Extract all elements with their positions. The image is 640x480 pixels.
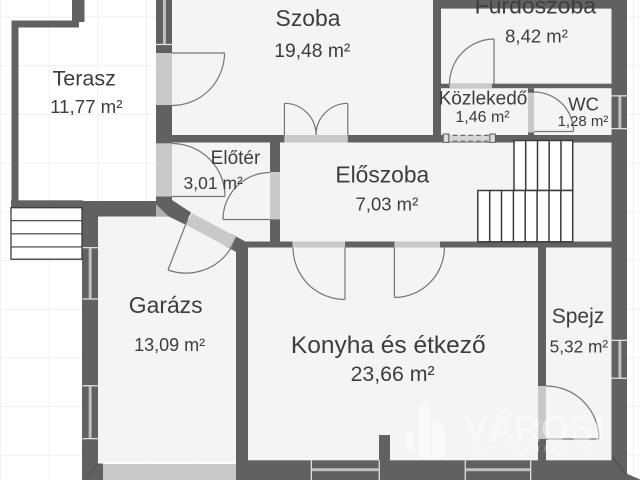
svg-text:3,01 m²: 3,01 m² — [184, 173, 243, 193]
svg-text:19,48 m²: 19,48 m² — [274, 41, 351, 62]
svg-text:Előtér: Előtér — [211, 148, 261, 169]
svg-text:INGATLANIRODA: INGATLANIRODA — [464, 444, 594, 454]
svg-text:7,03 m²: 7,03 m² — [356, 194, 419, 215]
svg-text:Fürdőszoba: Fürdőszoba — [475, 0, 597, 19]
svg-text:Terasz: Terasz — [53, 67, 116, 91]
svg-text:Szoba: Szoba — [276, 5, 341, 31]
svg-text:Konyha és étkező: Konyha és étkező — [291, 332, 486, 359]
svg-text:Előszoba: Előszoba — [335, 161, 429, 187]
svg-text:Spejz: Spejz — [552, 305, 605, 328]
svg-text:Garázs: Garázs — [129, 292, 203, 318]
svg-text:5,32 m²: 5,32 m² — [550, 337, 609, 357]
svg-text:1,46 m²: 1,46 m² — [455, 109, 510, 126]
svg-text:8,42 m²: 8,42 m² — [505, 26, 568, 47]
svg-text:23,66 m²: 23,66 m² — [351, 362, 435, 386]
svg-text:WC: WC — [568, 94, 599, 115]
svg-text:11,77 m²: 11,77 m² — [50, 96, 122, 117]
svg-text:Közlekedő: Közlekedő — [439, 89, 528, 110]
svg-text:1,28 m²: 1,28 m² — [558, 113, 609, 130]
svg-text:13,09 m²: 13,09 m² — [134, 335, 205, 355]
